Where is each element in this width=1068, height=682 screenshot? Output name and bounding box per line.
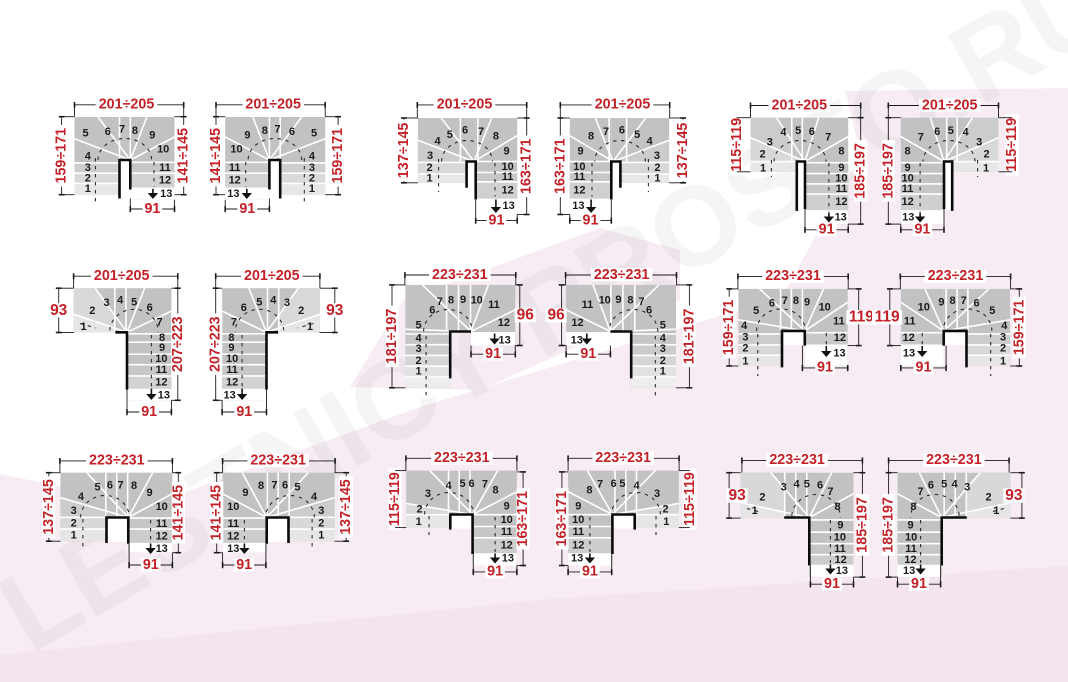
svg-text:201÷205: 201÷205 [772, 97, 828, 113]
svg-text:10: 10 [471, 295, 483, 307]
svg-text:9: 9 [244, 130, 250, 142]
svg-text:11: 11 [833, 316, 845, 328]
svg-text:7: 7 [639, 296, 645, 308]
svg-text:6: 6 [646, 304, 652, 316]
svg-text:10: 10 [918, 302, 930, 314]
svg-text:2: 2 [427, 162, 433, 174]
svg-text:11: 11 [574, 171, 586, 183]
svg-text:5: 5 [460, 478, 466, 490]
svg-text:6: 6 [934, 126, 940, 138]
svg-text:3: 3 [767, 137, 773, 149]
svg-text:7: 7 [437, 296, 443, 308]
svg-text:7: 7 [119, 124, 125, 136]
svg-text:8: 8 [448, 294, 454, 306]
svg-text:93: 93 [326, 302, 344, 319]
svg-text:159÷171: 159÷171 [721, 300, 737, 356]
svg-text:91: 91 [236, 404, 252, 420]
svg-text:6: 6 [429, 304, 435, 316]
svg-text:10: 10 [501, 514, 513, 526]
svg-text:223÷231: 223÷231 [926, 452, 982, 468]
svg-text:5: 5 [416, 319, 422, 331]
svg-text:7: 7 [275, 124, 281, 136]
svg-text:91: 91 [582, 564, 598, 580]
svg-text:6: 6 [809, 126, 815, 138]
svg-text:223÷231: 223÷231 [594, 267, 650, 283]
svg-text:10: 10 [227, 501, 239, 513]
svg-text:12: 12 [834, 332, 846, 344]
svg-text:9: 9 [159, 342, 165, 354]
svg-text:159÷171: 159÷171 [1011, 300, 1027, 356]
svg-text:11: 11 [229, 162, 241, 174]
svg-text:12: 12 [572, 540, 584, 552]
svg-text:11: 11 [156, 364, 168, 376]
svg-text:8: 8 [910, 501, 916, 513]
svg-text:7: 7 [827, 486, 833, 498]
svg-text:1: 1 [993, 505, 999, 517]
svg-text:163÷171: 163÷171 [515, 491, 531, 547]
svg-text:2: 2 [1000, 343, 1006, 355]
svg-text:91: 91 [239, 201, 255, 217]
svg-text:1: 1 [416, 516, 422, 528]
svg-text:4: 4 [311, 491, 318, 503]
svg-text:4: 4 [445, 480, 452, 492]
svg-text:91: 91 [914, 222, 930, 238]
svg-text:91: 91 [817, 360, 833, 376]
svg-text:10: 10 [156, 501, 168, 513]
svg-text:13: 13 [223, 390, 235, 402]
svg-text:8: 8 [588, 130, 594, 142]
svg-text:11: 11 [227, 518, 239, 530]
svg-text:141÷145: 141÷145 [208, 128, 224, 184]
svg-text:3: 3 [964, 481, 970, 493]
svg-text:91: 91 [236, 557, 252, 573]
svg-text:8: 8 [131, 480, 137, 492]
svg-text:141÷145: 141÷145 [209, 485, 225, 541]
svg-text:181÷197: 181÷197 [681, 309, 697, 365]
svg-text:11: 11 [156, 518, 168, 530]
svg-text:13: 13 [902, 212, 914, 224]
svg-text:4: 4 [309, 151, 316, 163]
svg-text:12: 12 [902, 332, 914, 344]
svg-text:4: 4 [1001, 320, 1008, 332]
svg-text:207÷223: 207÷223 [208, 316, 224, 372]
svg-text:13: 13 [571, 334, 583, 346]
svg-text:1: 1 [71, 529, 77, 541]
svg-text:5: 5 [95, 481, 101, 493]
svg-text:9: 9 [804, 296, 810, 308]
svg-text:8: 8 [493, 485, 499, 497]
svg-text:185÷197: 185÷197 [881, 497, 897, 553]
svg-text:5: 5 [948, 125, 954, 137]
svg-text:2: 2 [742, 343, 748, 355]
svg-text:115÷119: 115÷119 [1004, 118, 1020, 172]
svg-text:3: 3 [416, 343, 422, 355]
svg-text:10: 10 [599, 295, 611, 307]
svg-text:5: 5 [753, 305, 759, 317]
svg-text:2: 2 [986, 492, 992, 504]
svg-text:1: 1 [318, 529, 324, 541]
svg-text:13: 13 [498, 334, 510, 346]
svg-text:12: 12 [155, 377, 167, 389]
svg-text:11: 11 [501, 526, 513, 538]
svg-text:2: 2 [759, 492, 765, 504]
svg-text:137÷145: 137÷145 [675, 123, 691, 179]
svg-text:3: 3 [425, 488, 431, 500]
svg-text:12: 12 [227, 531, 239, 543]
svg-text:201÷205: 201÷205 [245, 97, 301, 113]
svg-text:8: 8 [262, 125, 268, 137]
svg-text:201÷205: 201÷205 [94, 268, 150, 284]
svg-text:1: 1 [760, 162, 766, 174]
svg-text:6: 6 [105, 126, 111, 138]
svg-text:223÷231: 223÷231 [434, 450, 490, 466]
svg-text:223÷231: 223÷231 [250, 453, 306, 469]
svg-text:10: 10 [905, 532, 917, 544]
svg-text:10: 10 [819, 302, 831, 314]
svg-text:91: 91 [144, 201, 160, 217]
svg-text:185÷197: 185÷197 [880, 143, 896, 199]
svg-text:13: 13 [833, 347, 845, 359]
svg-text:7: 7 [825, 132, 831, 144]
svg-text:7: 7 [961, 295, 967, 307]
svg-text:91: 91 [916, 360, 932, 376]
svg-text:4: 4 [741, 320, 748, 332]
svg-text:7: 7 [782, 295, 788, 307]
svg-text:201÷205: 201÷205 [437, 97, 493, 113]
svg-text:8: 8 [950, 295, 956, 307]
svg-text:2: 2 [318, 517, 324, 529]
svg-text:6: 6 [769, 297, 775, 309]
svg-text:9: 9 [577, 146, 583, 158]
svg-text:2: 2 [654, 162, 660, 174]
svg-text:7: 7 [482, 479, 488, 491]
svg-text:5: 5 [311, 128, 317, 140]
svg-text:3: 3 [976, 137, 982, 149]
svg-text:11: 11 [226, 364, 238, 376]
svg-text:9: 9 [503, 146, 509, 158]
svg-text:5: 5 [989, 305, 995, 317]
svg-text:141÷145: 141÷145 [176, 128, 192, 184]
svg-text:4: 4 [646, 135, 653, 147]
svg-text:4: 4 [78, 491, 85, 503]
svg-text:5: 5 [294, 481, 300, 493]
svg-text:93: 93 [1005, 487, 1023, 504]
svg-text:5: 5 [619, 478, 625, 490]
svg-text:11: 11 [904, 316, 916, 328]
svg-text:1: 1 [663, 516, 669, 528]
svg-text:8: 8 [627, 294, 633, 306]
svg-text:11: 11 [902, 183, 914, 195]
svg-text:3: 3 [318, 505, 324, 517]
svg-text:12: 12 [229, 175, 241, 187]
svg-text:10: 10 [834, 532, 846, 544]
svg-text:9: 9 [228, 342, 234, 354]
svg-text:119: 119 [875, 309, 900, 326]
svg-text:7: 7 [271, 479, 277, 491]
svg-text:6: 6 [147, 302, 153, 314]
svg-text:6: 6 [289, 126, 295, 138]
svg-text:9: 9 [837, 520, 843, 532]
svg-text:11: 11 [488, 299, 500, 311]
svg-text:2: 2 [89, 305, 95, 317]
svg-text:2: 2 [660, 355, 666, 367]
svg-text:6: 6 [974, 297, 980, 309]
svg-text:3: 3 [103, 297, 109, 309]
svg-text:1: 1 [752, 505, 758, 517]
svg-text:12: 12 [226, 377, 238, 389]
svg-text:8: 8 [258, 480, 264, 492]
svg-text:5: 5 [447, 129, 453, 141]
svg-text:4: 4 [793, 479, 800, 491]
svg-text:3: 3 [781, 481, 787, 493]
svg-text:223÷231: 223÷231 [89, 453, 145, 469]
svg-text:6: 6 [241, 302, 247, 314]
svg-text:13: 13 [835, 212, 847, 224]
svg-text:13: 13 [903, 347, 915, 359]
svg-text:7: 7 [231, 316, 237, 328]
svg-text:4: 4 [434, 135, 441, 147]
svg-text:8: 8 [793, 295, 799, 307]
svg-text:10: 10 [572, 514, 584, 526]
svg-text:9: 9 [938, 296, 944, 308]
svg-text:1: 1 [1000, 355, 1006, 367]
svg-text:5: 5 [131, 296, 137, 308]
svg-text:8: 8 [586, 485, 592, 497]
svg-text:13: 13 [227, 188, 239, 200]
svg-text:201÷205: 201÷205 [244, 268, 300, 284]
svg-text:6: 6 [928, 480, 934, 492]
svg-text:12: 12 [901, 196, 913, 208]
svg-text:9: 9 [908, 520, 914, 532]
svg-text:5: 5 [795, 125, 801, 137]
svg-text:4: 4 [416, 333, 423, 345]
svg-text:6: 6 [107, 479, 113, 491]
svg-text:91: 91 [583, 212, 599, 228]
svg-text:137÷145: 137÷145 [41, 479, 57, 535]
svg-text:5: 5 [941, 479, 947, 491]
svg-text:185÷197: 185÷197 [854, 497, 870, 553]
svg-text:6: 6 [282, 479, 288, 491]
svg-text:5: 5 [804, 479, 810, 491]
svg-text:3: 3 [427, 150, 433, 162]
svg-text:159÷171: 159÷171 [54, 128, 70, 184]
svg-text:3: 3 [71, 505, 77, 517]
svg-text:9: 9 [504, 501, 510, 513]
svg-text:2: 2 [298, 305, 304, 317]
svg-text:8: 8 [905, 145, 911, 157]
svg-text:13: 13 [227, 543, 239, 555]
svg-text:1: 1 [416, 366, 422, 378]
svg-text:3: 3 [309, 162, 315, 174]
svg-text:10: 10 [230, 144, 242, 156]
svg-text:1: 1 [742, 355, 748, 367]
svg-text:91: 91 [485, 346, 501, 362]
svg-text:3: 3 [660, 343, 666, 355]
svg-text:137÷145: 137÷145 [396, 123, 412, 179]
svg-text:223÷231: 223÷231 [432, 267, 488, 283]
svg-text:119: 119 [849, 309, 874, 326]
svg-text:201÷205: 201÷205 [922, 97, 978, 113]
svg-text:4: 4 [270, 294, 277, 306]
svg-text:6: 6 [610, 478, 616, 490]
svg-text:3: 3 [654, 150, 660, 162]
svg-text:9: 9 [460, 294, 466, 306]
svg-text:163÷171: 163÷171 [519, 138, 535, 194]
svg-text:13: 13 [502, 553, 514, 565]
svg-text:1: 1 [307, 321, 313, 333]
svg-text:12: 12 [498, 317, 510, 329]
svg-text:223÷231: 223÷231 [595, 450, 651, 466]
svg-text:12: 12 [571, 317, 583, 329]
svg-text:8: 8 [835, 501, 841, 513]
svg-text:4: 4 [963, 127, 970, 139]
svg-text:11: 11 [572, 526, 584, 538]
svg-text:93: 93 [728, 487, 746, 504]
svg-text:223÷231: 223÷231 [769, 452, 825, 468]
svg-text:96: 96 [547, 307, 565, 324]
svg-text:1: 1 [81, 321, 87, 333]
svg-text:12: 12 [501, 540, 513, 552]
svg-text:7: 7 [918, 486, 924, 498]
svg-text:96: 96 [517, 307, 535, 324]
svg-text:6: 6 [462, 124, 468, 136]
svg-text:5: 5 [256, 296, 262, 308]
svg-text:13: 13 [160, 188, 172, 200]
svg-text:91: 91 [819, 222, 835, 238]
svg-text:1: 1 [85, 183, 91, 195]
svg-text:12: 12 [156, 531, 168, 543]
svg-text:9: 9 [615, 294, 621, 306]
svg-text:91: 91 [824, 576, 840, 592]
svg-text:7: 7 [597, 479, 603, 491]
svg-text:1: 1 [983, 162, 989, 174]
svg-text:6: 6 [468, 478, 474, 490]
svg-text:141÷145: 141÷145 [170, 485, 186, 541]
svg-text:93: 93 [50, 302, 68, 319]
svg-text:4: 4 [85, 151, 92, 163]
svg-text:8: 8 [493, 130, 499, 142]
svg-text:6: 6 [619, 124, 625, 136]
svg-text:4: 4 [660, 333, 667, 345]
svg-text:159÷171: 159÷171 [330, 128, 346, 184]
svg-text:163÷171: 163÷171 [552, 138, 568, 194]
svg-text:11: 11 [836, 183, 848, 195]
svg-text:9: 9 [149, 130, 155, 142]
svg-text:3: 3 [85, 162, 91, 174]
svg-text:2: 2 [759, 148, 765, 160]
svg-text:7: 7 [918, 132, 924, 144]
svg-text:2: 2 [983, 148, 989, 160]
svg-text:11: 11 [502, 171, 514, 183]
svg-text:207÷223: 207÷223 [170, 316, 186, 372]
svg-text:7: 7 [603, 126, 609, 138]
svg-text:12: 12 [835, 196, 847, 208]
svg-text:3: 3 [1000, 331, 1006, 343]
svg-text:115÷119: 115÷119 [729, 118, 745, 172]
svg-text:7: 7 [157, 316, 163, 328]
svg-text:12: 12 [159, 175, 171, 187]
svg-text:201÷205: 201÷205 [595, 97, 651, 113]
svg-text:2: 2 [416, 355, 422, 367]
svg-text:12: 12 [573, 185, 585, 197]
svg-text:3: 3 [654, 488, 660, 500]
svg-text:91: 91 [580, 346, 596, 362]
svg-text:181÷197: 181÷197 [384, 309, 400, 365]
svg-text:137÷145: 137÷145 [338, 479, 354, 535]
svg-text:3: 3 [284, 297, 290, 309]
svg-text:10: 10 [157, 144, 169, 156]
svg-text:5: 5 [660, 319, 666, 331]
svg-text:91: 91 [911, 576, 927, 592]
svg-text:2: 2 [662, 504, 668, 516]
svg-text:91: 91 [141, 404, 157, 420]
svg-text:4: 4 [117, 294, 124, 306]
svg-text:5: 5 [83, 128, 89, 140]
svg-text:11: 11 [159, 162, 171, 174]
svg-text:8: 8 [132, 125, 138, 137]
svg-text:2: 2 [416, 504, 422, 516]
svg-text:91: 91 [487, 564, 503, 580]
svg-text:7: 7 [118, 479, 124, 491]
svg-text:6: 6 [817, 480, 823, 492]
svg-text:1: 1 [660, 366, 666, 378]
svg-text:13: 13 [158, 390, 170, 402]
svg-text:223÷231: 223÷231 [765, 268, 821, 284]
svg-text:91: 91 [489, 212, 505, 228]
svg-text:13: 13 [572, 200, 584, 212]
svg-text:185÷197: 185÷197 [853, 143, 869, 199]
svg-text:8: 8 [838, 145, 844, 157]
svg-text:4: 4 [633, 480, 640, 492]
svg-text:13: 13 [502, 200, 514, 212]
svg-text:115÷119: 115÷119 [682, 472, 698, 526]
svg-text:4: 4 [780, 127, 787, 139]
svg-text:163÷171: 163÷171 [554, 491, 570, 547]
svg-text:1: 1 [309, 183, 315, 195]
svg-text:2: 2 [71, 517, 77, 529]
svg-text:223÷231: 223÷231 [928, 268, 984, 284]
svg-text:12: 12 [501, 185, 513, 197]
svg-text:4: 4 [951, 479, 958, 491]
svg-text:91: 91 [143, 557, 159, 573]
svg-text:5: 5 [634, 129, 640, 141]
svg-text:115÷119: 115÷119 [387, 472, 403, 526]
svg-text:9: 9 [147, 487, 153, 499]
svg-text:11: 11 [582, 299, 594, 311]
svg-text:9: 9 [575, 501, 581, 513]
svg-text:7: 7 [478, 126, 484, 138]
svg-text:201÷205: 201÷205 [99, 97, 155, 113]
svg-text:13: 13 [156, 543, 168, 555]
svg-text:9: 9 [242, 487, 248, 499]
svg-text:3: 3 [742, 331, 748, 343]
